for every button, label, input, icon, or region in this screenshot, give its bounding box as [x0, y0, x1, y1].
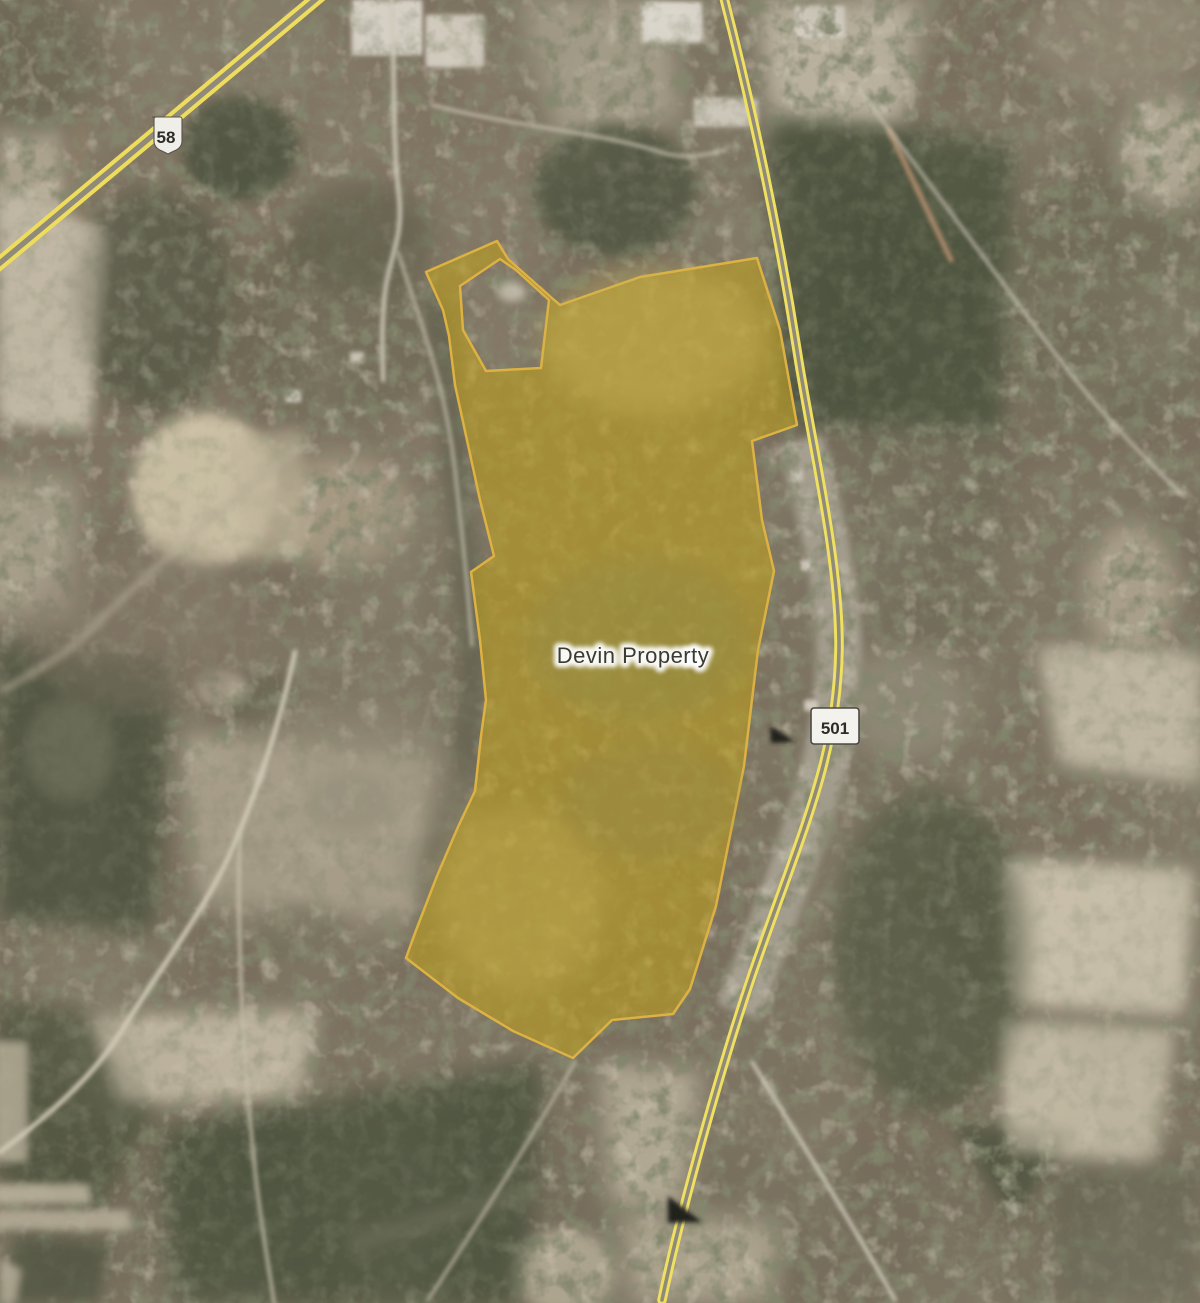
svg-text:501: 501 [821, 719, 849, 738]
svg-text:Devin Property: Devin Property [557, 643, 710, 668]
svg-text:58: 58 [157, 128, 176, 147]
